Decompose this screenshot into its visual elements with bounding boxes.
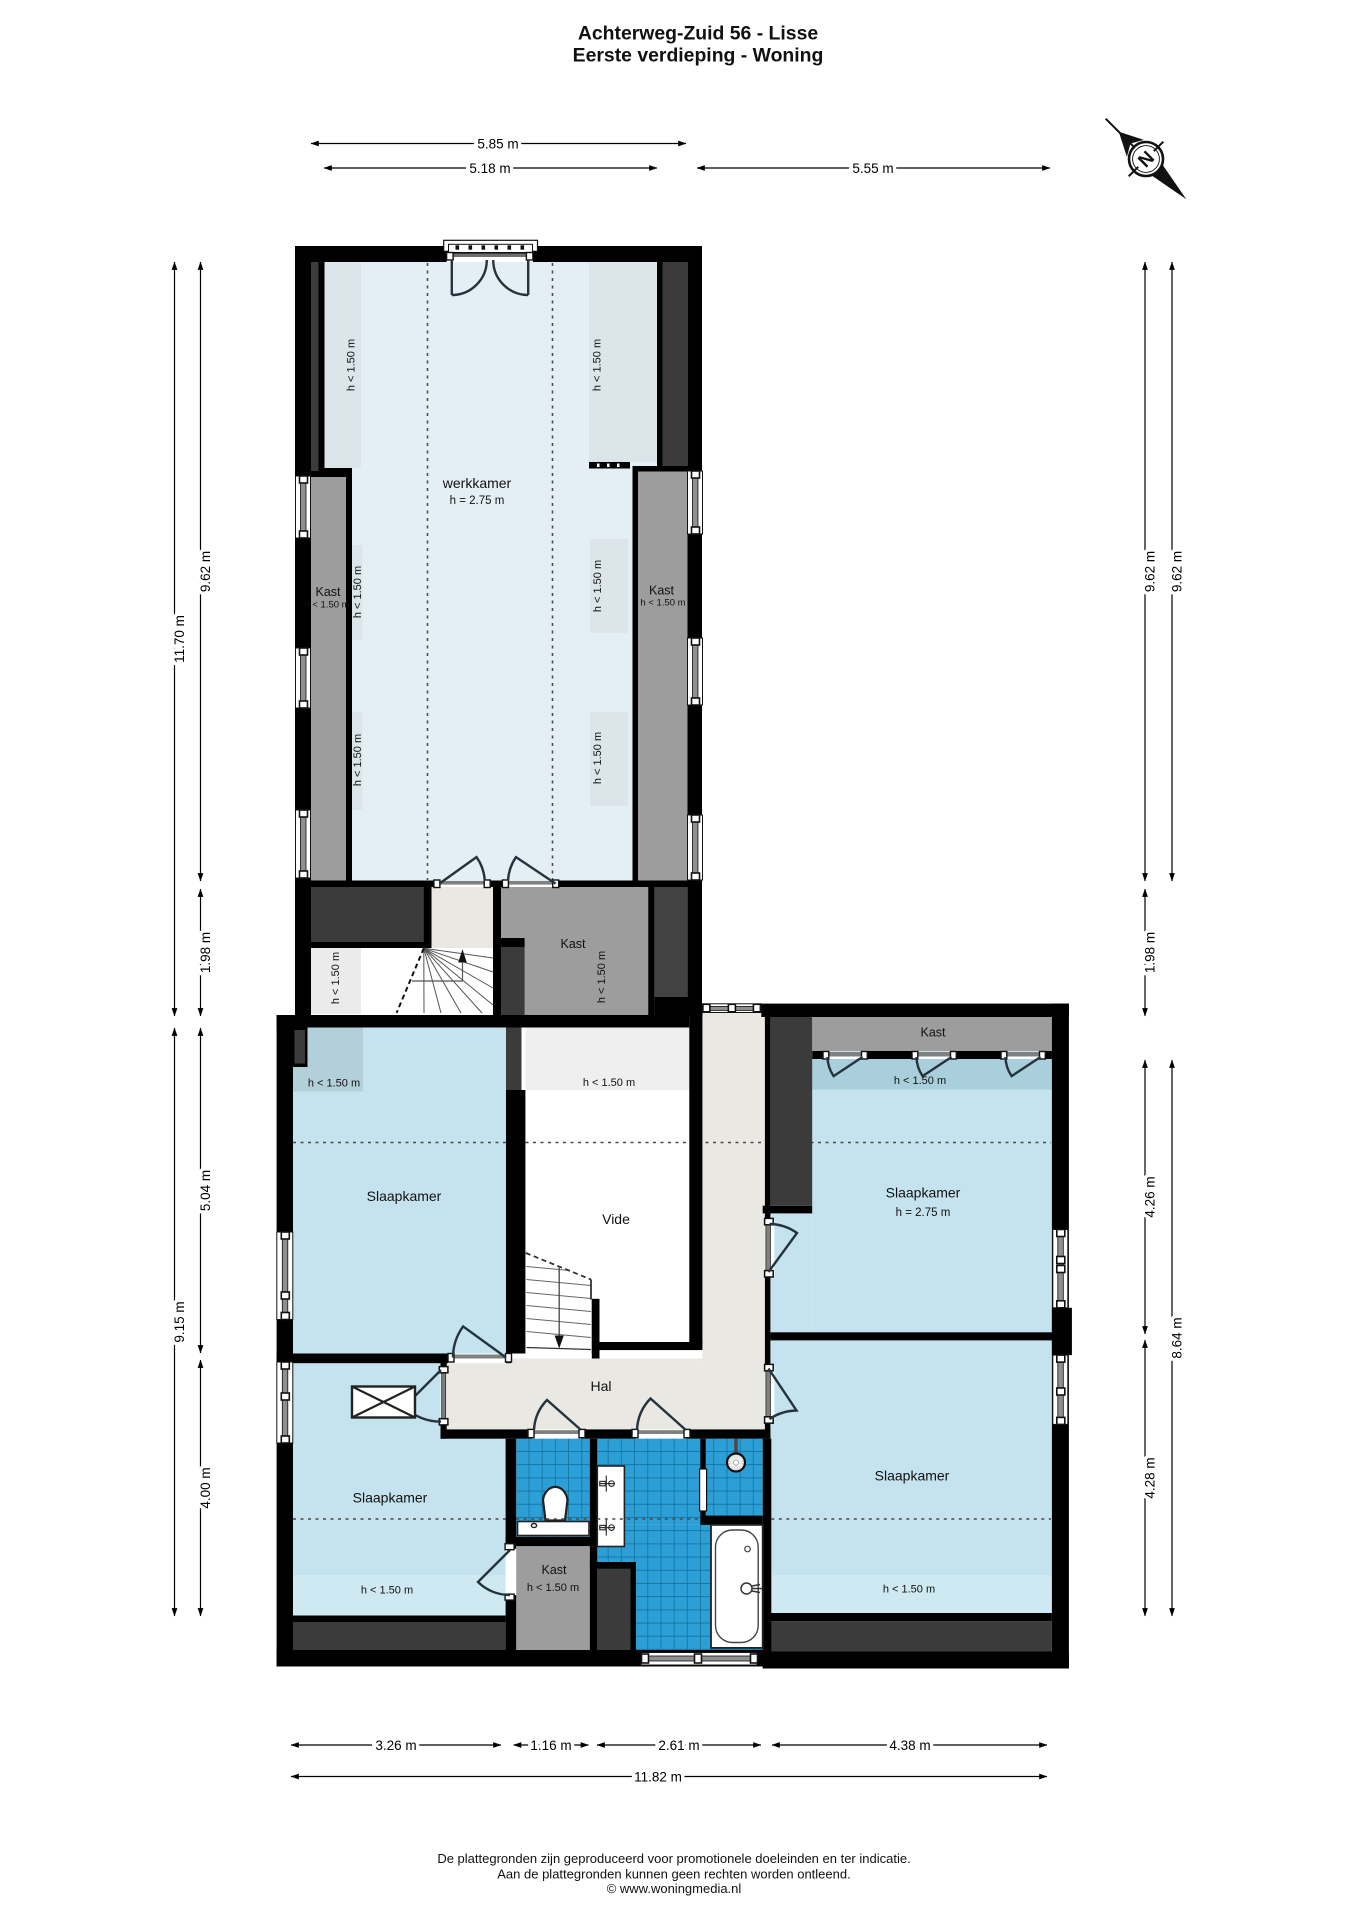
svg-text:5.85 m: 5.85 m bbox=[477, 137, 518, 152]
svg-text:5.18 m: 5.18 m bbox=[469, 161, 510, 176]
svg-text:De plattegronden zijn geproduc: De plattegronden zijn geproduceerd voor … bbox=[437, 1851, 910, 1866]
svg-text:5.04 m: 5.04 m bbox=[198, 1170, 213, 1211]
svg-text:9.15 m: 9.15 m bbox=[172, 1301, 187, 1342]
svg-text:9.62 m: 9.62 m bbox=[198, 551, 213, 592]
svg-text:Kast: Kast bbox=[315, 585, 341, 599]
svg-text:4.38 m: 4.38 m bbox=[889, 1738, 930, 1753]
svg-text:Slaapkamer: Slaapkamer bbox=[367, 1188, 442, 1204]
svg-text:4.00 m: 4.00 m bbox=[198, 1467, 213, 1508]
svg-text:2.61 m: 2.61 m bbox=[658, 1738, 699, 1753]
svg-text:h < 1.50 m: h < 1.50 m bbox=[352, 734, 364, 786]
svg-text:© www.woningmedia.nl: © www.woningmedia.nl bbox=[607, 1881, 742, 1896]
svg-text:h < 1.50 m: h < 1.50 m bbox=[583, 1077, 635, 1089]
svg-text:1.98 m: 1.98 m bbox=[198, 932, 213, 973]
svg-text:h < 1.50 m: h < 1.50 m bbox=[640, 598, 685, 609]
svg-text:h < 1.50 m: h < 1.50 m bbox=[592, 339, 604, 391]
svg-text:h < 1.50 m: h < 1.50 m bbox=[596, 951, 608, 1003]
svg-text:11.70 m: 11.70 m bbox=[172, 615, 187, 663]
svg-text:Achterweg-Zuid 56 - Lisse: Achterweg-Zuid 56 - Lisse bbox=[578, 23, 818, 45]
svg-text:11.82 m: 11.82 m bbox=[634, 1770, 682, 1785]
svg-text:3.26 m: 3.26 m bbox=[375, 1738, 416, 1753]
svg-text:Aan de plattegronden kunnen ge: Aan de plattegronden kunnen geen rechten… bbox=[497, 1867, 850, 1882]
svg-text:1.98 m: 1.98 m bbox=[1143, 932, 1158, 973]
svg-text:Hal: Hal bbox=[590, 1378, 611, 1394]
svg-text:9.62 m: 9.62 m bbox=[1170, 551, 1185, 592]
svg-text:1.16 m: 1.16 m bbox=[530, 1738, 571, 1753]
svg-text:h < 1.50 m: h < 1.50 m bbox=[304, 600, 349, 611]
svg-text:h < 1.50 m: h < 1.50 m bbox=[352, 566, 364, 618]
svg-text:Eerste verdieping - Woning: Eerste verdieping - Woning bbox=[573, 45, 824, 67]
svg-text:Kast: Kast bbox=[920, 1026, 946, 1040]
svg-text:h = 2.75 m: h = 2.75 m bbox=[896, 1207, 951, 1219]
svg-text:9.62 m: 9.62 m bbox=[1143, 551, 1158, 592]
svg-text:5.55 m: 5.55 m bbox=[852, 161, 893, 176]
svg-text:Slaapkamer: Slaapkamer bbox=[353, 1490, 428, 1506]
svg-text:h < 1.50 m: h < 1.50 m bbox=[345, 339, 357, 391]
svg-text:h < 1.50 m: h < 1.50 m bbox=[592, 560, 604, 612]
svg-text:Slaapkamer: Slaapkamer bbox=[886, 1185, 961, 1201]
svg-text:h = 2.75 m: h = 2.75 m bbox=[450, 495, 505, 507]
svg-text:Kast: Kast bbox=[560, 937, 586, 951]
svg-text:4.26 m: 4.26 m bbox=[1143, 1176, 1158, 1217]
svg-text:Vide: Vide bbox=[602, 1211, 630, 1227]
svg-text:Kast: Kast bbox=[649, 584, 675, 598]
svg-text:h < 1.50 m: h < 1.50 m bbox=[308, 1078, 360, 1090]
svg-text:4.28 m: 4.28 m bbox=[1143, 1457, 1158, 1498]
svg-text:werkkamer: werkkamer bbox=[442, 475, 512, 491]
svg-text:h < 1.50 m: h < 1.50 m bbox=[883, 1584, 935, 1596]
svg-text:h < 1.50 m: h < 1.50 m bbox=[894, 1075, 946, 1087]
svg-text:8.64 m: 8.64 m bbox=[1170, 1317, 1185, 1358]
svg-text:h < 1.50 m: h < 1.50 m bbox=[592, 732, 604, 784]
svg-text:Slaapkamer: Slaapkamer bbox=[875, 1468, 950, 1484]
svg-text:Kast: Kast bbox=[541, 1563, 567, 1577]
svg-text:h < 1.50 m: h < 1.50 m bbox=[361, 1585, 413, 1597]
svg-text:h < 1.50 m: h < 1.50 m bbox=[527, 1582, 579, 1594]
svg-text:h < 1.50 m: h < 1.50 m bbox=[330, 952, 342, 1004]
